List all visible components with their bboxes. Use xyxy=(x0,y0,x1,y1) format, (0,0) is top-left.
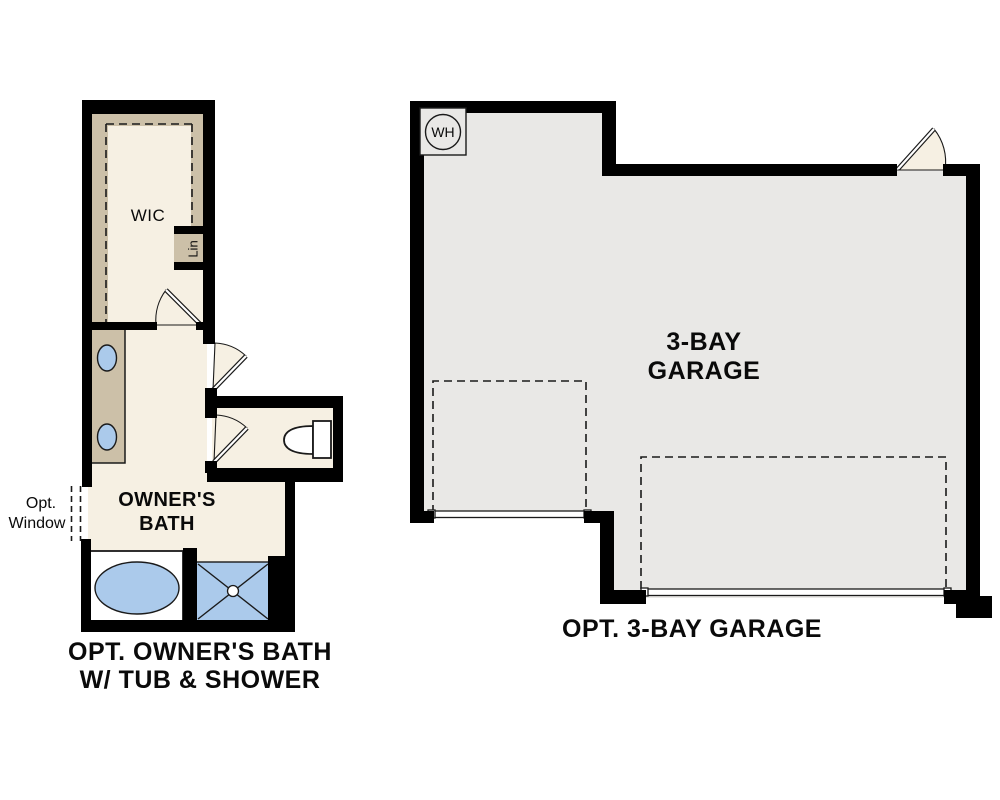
garage-room-label-line1: 3-BAY xyxy=(666,328,741,356)
opt-window-note-line2: Window xyxy=(9,515,66,532)
garage-door-double xyxy=(641,588,951,596)
bath-entry-door-swing xyxy=(213,343,246,390)
bath-room-label-line2: BATH xyxy=(139,513,195,535)
linen-wall-top xyxy=(174,226,208,234)
garage-door-panel xyxy=(644,589,948,596)
garage-door-panel xyxy=(431,511,588,518)
linen-closet: Lin xyxy=(174,226,208,270)
shower-symbol xyxy=(196,562,270,621)
water-heater-symbol: WH xyxy=(420,108,466,155)
shower-drain xyxy=(228,586,239,597)
bath-caption-line2: W/ TUB & SHOWER xyxy=(80,666,321,694)
garage-entry-door-swing xyxy=(898,129,946,170)
garage-room-label-line2: GARAGE xyxy=(648,357,761,385)
garage-caption: OPT. 3-BAY GARAGE xyxy=(562,615,822,643)
wic-label: WIC xyxy=(131,206,166,225)
toilet-bowl xyxy=(284,426,313,454)
water-heater-label: WH xyxy=(431,124,454,140)
bath-caption-line1: OPT. OWNER'S BATH xyxy=(68,638,332,666)
owners-bath-plan: Lin WIC OWNER'S BATH Opt. Window OPT. OW… xyxy=(9,100,343,694)
garage-plan: WH 3-BAY GARAGE OPT. 3-BAY GARAGE xyxy=(410,101,992,643)
linen-label: Lin xyxy=(186,240,201,257)
toilet-tank xyxy=(313,421,331,458)
bath-room-label-line1: OWNER'S xyxy=(118,489,216,511)
floorplan-page: Lin WIC OWNER'S BATH Opt. Window OPT. OW… xyxy=(0,0,1000,800)
linen-wall-bottom xyxy=(174,262,208,270)
garage-door-single xyxy=(428,510,591,518)
opt-window-note-line1: Opt. xyxy=(26,495,56,512)
bathtub-symbol xyxy=(88,551,183,622)
tub-basin xyxy=(95,562,179,614)
window-symbol xyxy=(72,486,81,541)
sink-icon xyxy=(98,345,117,371)
floorplan-drawing: Lin WIC OWNER'S BATH Opt. Window OPT. OW… xyxy=(0,0,1000,800)
sink-icon xyxy=(98,424,117,450)
